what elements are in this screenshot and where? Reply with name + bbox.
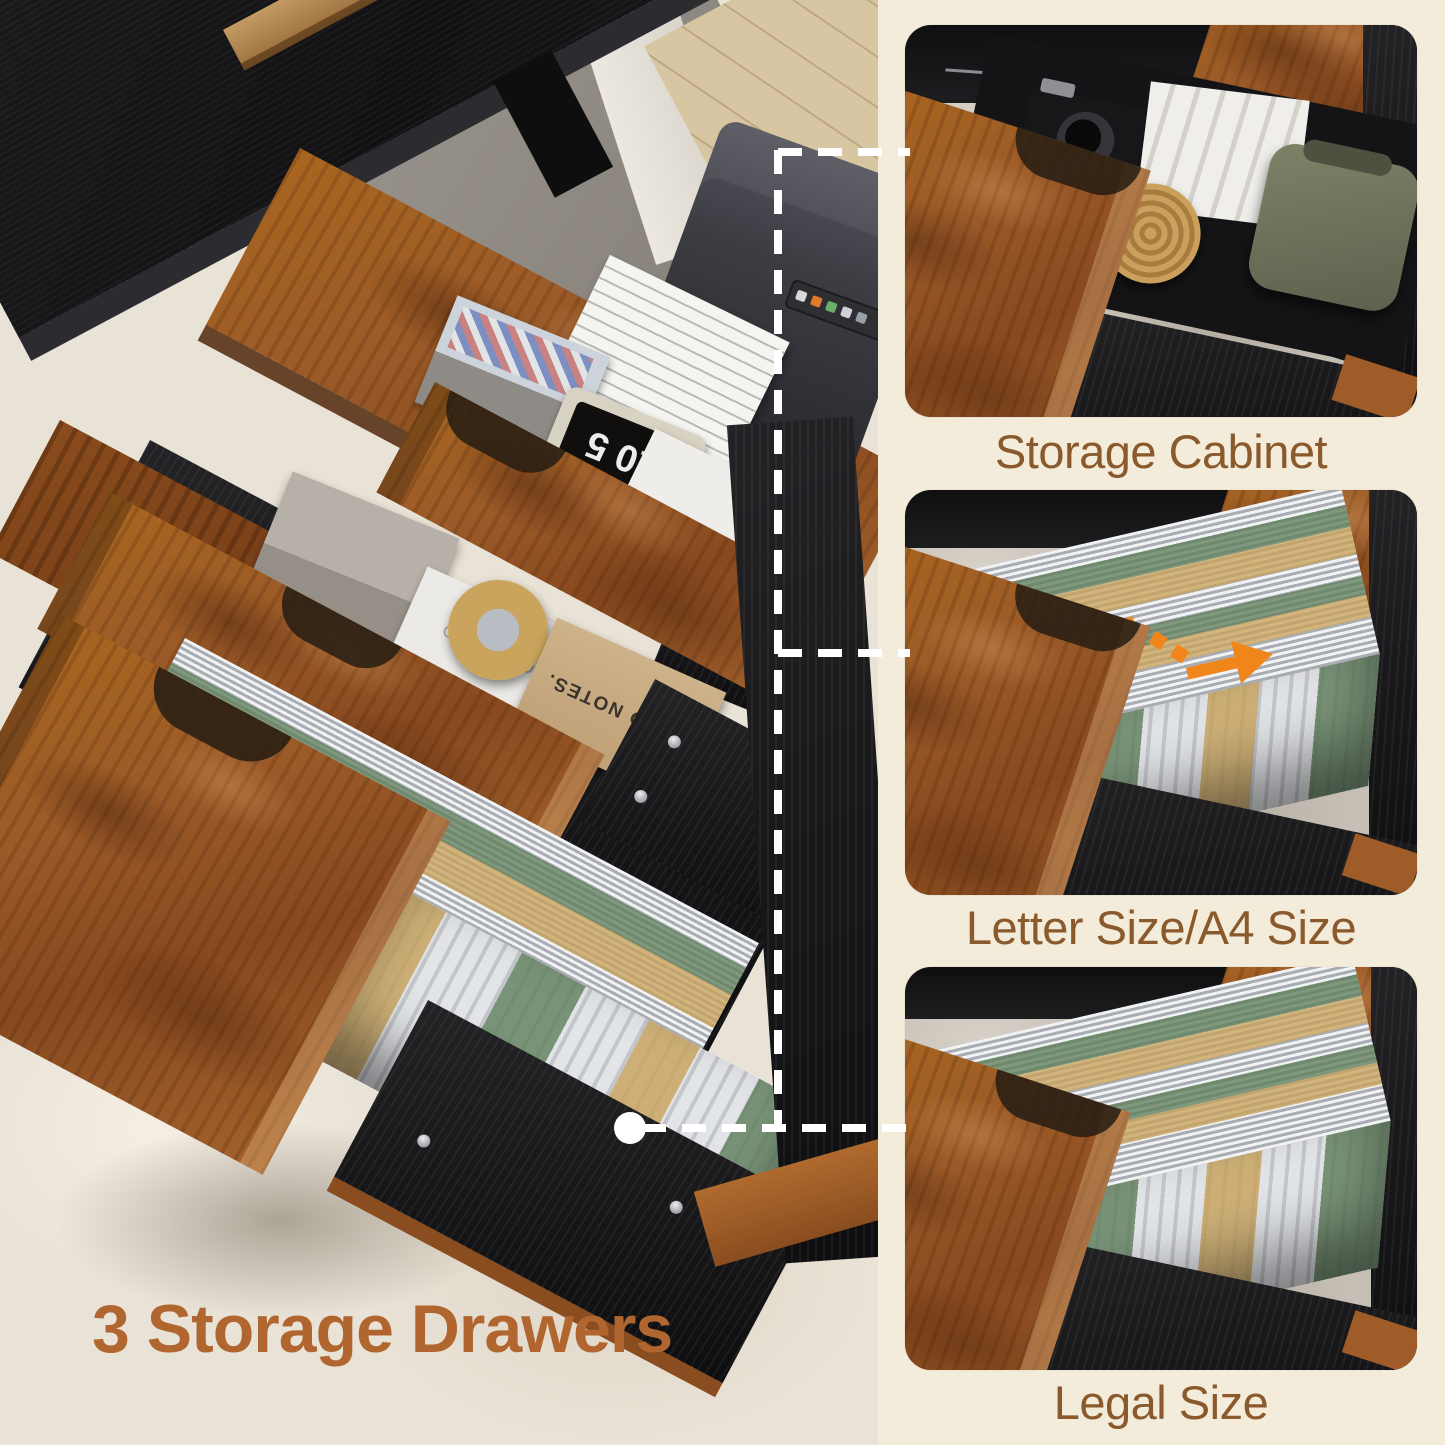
headline: 3 Storage Drawers bbox=[92, 1290, 672, 1368]
caption-legal: Legal Size bbox=[905, 1374, 1417, 1432]
camera-bag bbox=[1244, 139, 1417, 315]
product-infographic: { "headline": { "label": "3 Storage Draw… bbox=[0, 0, 1445, 1445]
callout-column: Storage Cabinet Letter Size/A4 Size bbox=[878, 0, 1445, 1445]
connector-top-line-icon bbox=[778, 148, 910, 156]
panel-legal bbox=[905, 967, 1417, 1370]
connector-dot-icon bbox=[614, 1112, 646, 1144]
main-product-photo: 10 5 MAT NOTEPAD FIELD NOTES. 3 Storage … bbox=[0, 0, 878, 1445]
caption-storage-cabinet: Storage Cabinet bbox=[905, 423, 1417, 481]
caption-letter-a4: Letter Size/A4 Size bbox=[905, 899, 1417, 957]
connector-vertical-line-icon bbox=[774, 150, 782, 1132]
panel-storage-cabinet bbox=[905, 25, 1417, 417]
connector-middle-line-icon bbox=[778, 649, 910, 657]
panel-letter-a4 bbox=[905, 490, 1417, 895]
connector-bottom-line-icon bbox=[642, 1124, 910, 1132]
